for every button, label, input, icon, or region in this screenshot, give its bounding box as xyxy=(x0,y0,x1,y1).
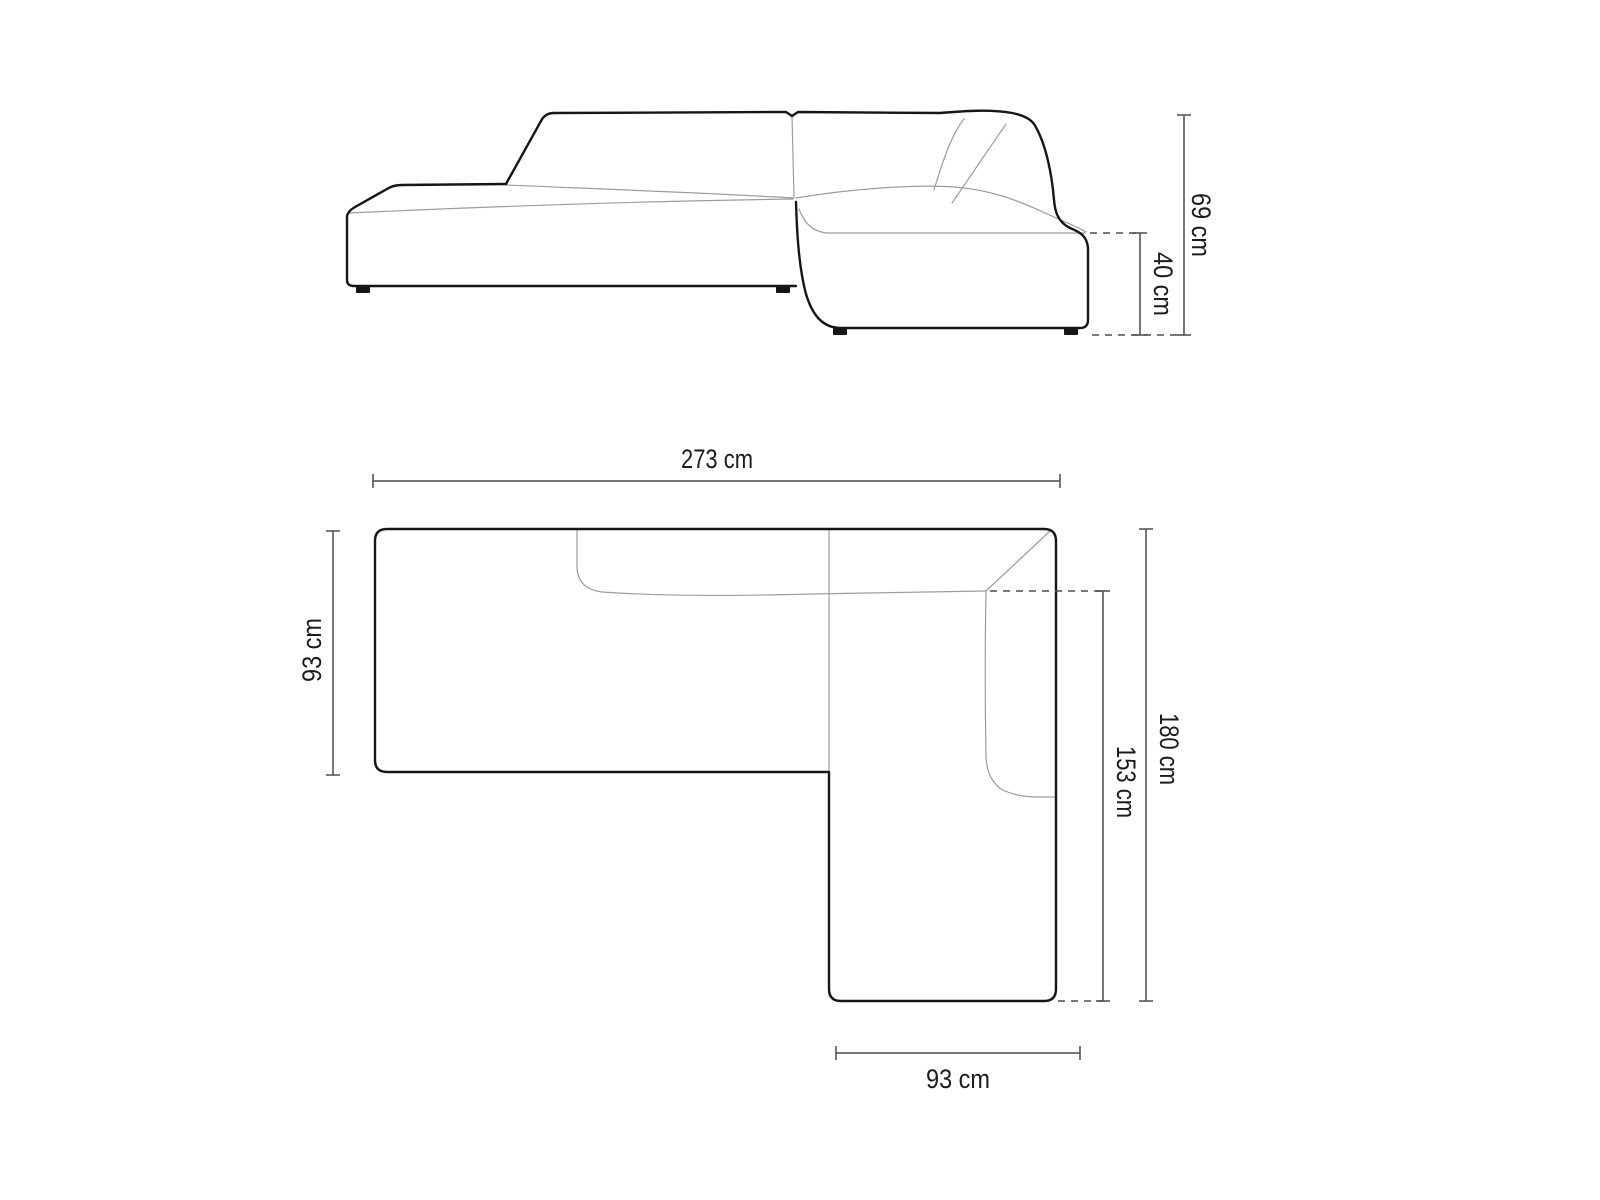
side-view-interior-lines xyxy=(349,116,1086,233)
plan-chaise-inner-line xyxy=(985,591,1056,797)
dimension-overall-depth: 180 cm xyxy=(1139,529,1184,1001)
seat-height-dim-line xyxy=(1133,233,1147,335)
dimension-chaise-width: 93 cm xyxy=(836,1046,1080,1094)
side-chaise-body xyxy=(796,202,1088,328)
dimension-left-depth: 93 cm xyxy=(297,531,340,775)
chaise-width-dim-line xyxy=(836,1046,1080,1060)
sofa-dimension-diagram: 40 cm 69 cm xyxy=(0,0,1600,1200)
chaise-inner-length-dim-line xyxy=(1096,591,1110,1001)
side-backrest-top xyxy=(506,111,1034,184)
plan-view-outline xyxy=(375,529,1056,1001)
overall-width-label: 273 cm xyxy=(681,444,753,474)
plan-corner-diagonal xyxy=(986,531,1050,591)
plan-view-interior-lines xyxy=(577,529,1056,797)
overall-depth-label: 180 cm xyxy=(1154,713,1184,785)
side-bench-front-edge xyxy=(349,199,793,213)
chaise-width-label: 93 cm xyxy=(926,1064,990,1094)
plan-view-projection-lines xyxy=(990,591,1103,1001)
sofa-foot xyxy=(356,286,370,293)
left-depth-label: 93 cm xyxy=(297,618,327,682)
chaise-inner-length-label: 153 cm xyxy=(1111,746,1141,818)
side-right-backrest xyxy=(1034,124,1088,248)
side-view-outline xyxy=(347,111,1088,328)
plan-view: 273 cm 93 cm 180 cm 153 cm 93 cm xyxy=(297,444,1184,1094)
sofa-foot xyxy=(1064,328,1078,335)
side-right-backrest-edge xyxy=(934,119,964,190)
side-bench-shoulder xyxy=(347,184,506,216)
overall-width-dim-line xyxy=(373,474,1060,488)
dimension-chaise-inner-length: 153 cm xyxy=(1096,591,1141,1001)
side-module-seam xyxy=(792,116,794,197)
side-seat-line-right xyxy=(796,186,1086,232)
dimension-seat-height: 40 cm xyxy=(1133,233,1178,335)
dimension-overall-height: 69 cm xyxy=(1177,115,1216,335)
side-seat-line-left xyxy=(506,185,794,198)
overall-height-label: 69 cm xyxy=(1186,193,1216,257)
side-bench-body xyxy=(347,216,796,286)
sofa-foot xyxy=(776,286,790,293)
left-depth-dim-line xyxy=(326,531,340,775)
side-chaise-top-edge xyxy=(799,209,1085,233)
side-view: 40 cm 69 cm xyxy=(347,111,1216,335)
sofa-foot xyxy=(833,328,847,335)
diagram-svg: 40 cm 69 cm xyxy=(0,0,1600,1200)
dimension-overall-width: 273 cm xyxy=(373,444,1060,488)
side-right-backrest-slant xyxy=(952,124,1006,203)
seat-height-label: 40 cm xyxy=(1148,252,1178,316)
plan-backrest-line xyxy=(577,529,986,595)
